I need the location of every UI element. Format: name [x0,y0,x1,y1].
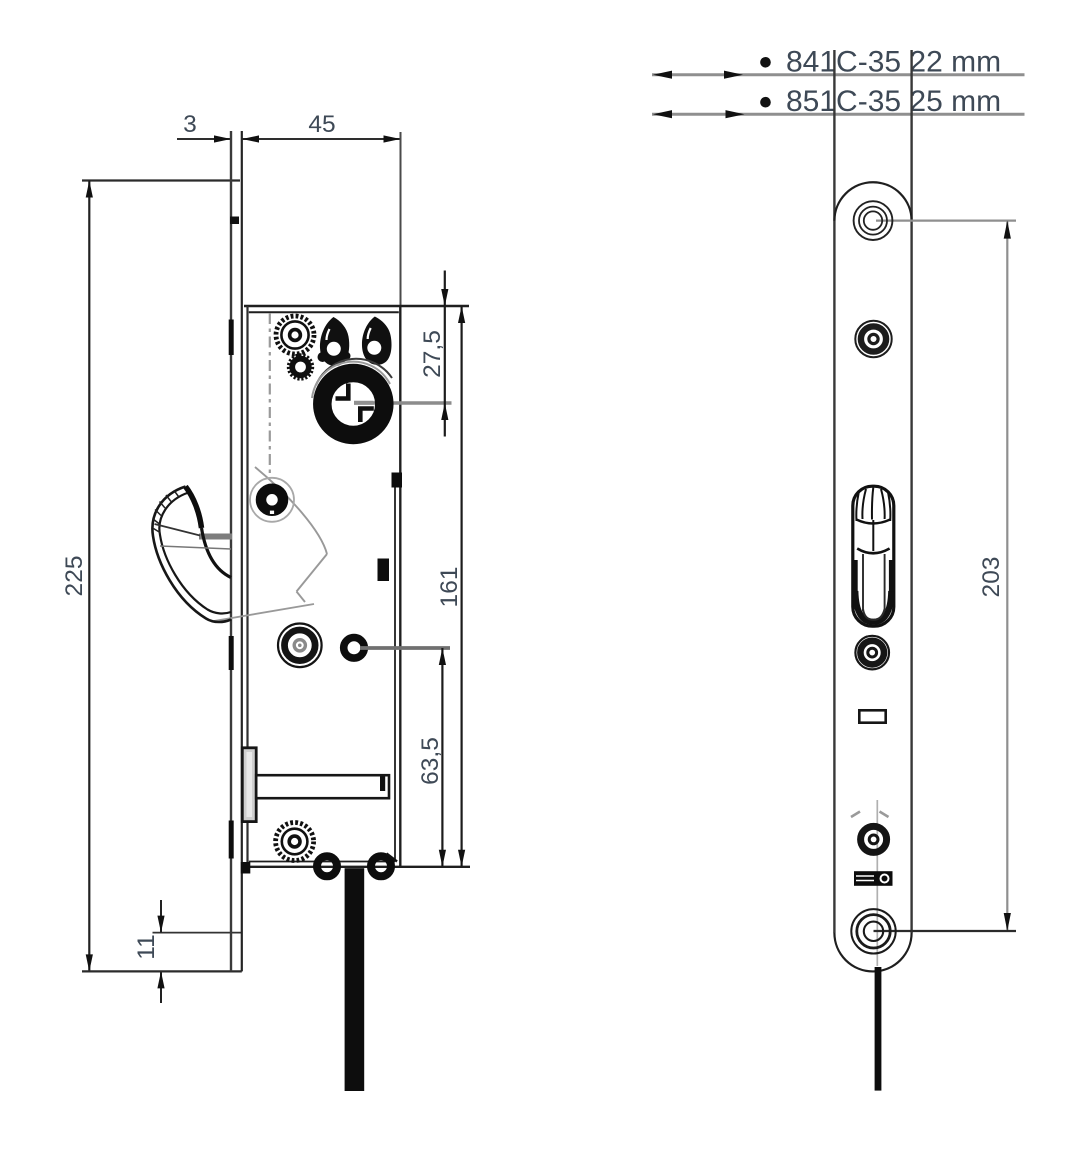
svg-text:27,5: 27,5 [419,330,446,378]
svg-text:161: 161 [436,567,463,608]
svg-text:841C-35 22 mm: 841C-35 22 mm [786,46,1001,79]
svg-text:203: 203 [978,557,1005,598]
svg-text:11: 11 [133,934,160,959]
svg-text:45: 45 [308,111,335,138]
svg-text:3: 3 [183,111,197,138]
svg-text:63,5: 63,5 [417,737,444,785]
svg-text:225: 225 [61,556,88,597]
svg-text:851C-35 25 mm: 851C-35 25 mm [786,85,1001,118]
